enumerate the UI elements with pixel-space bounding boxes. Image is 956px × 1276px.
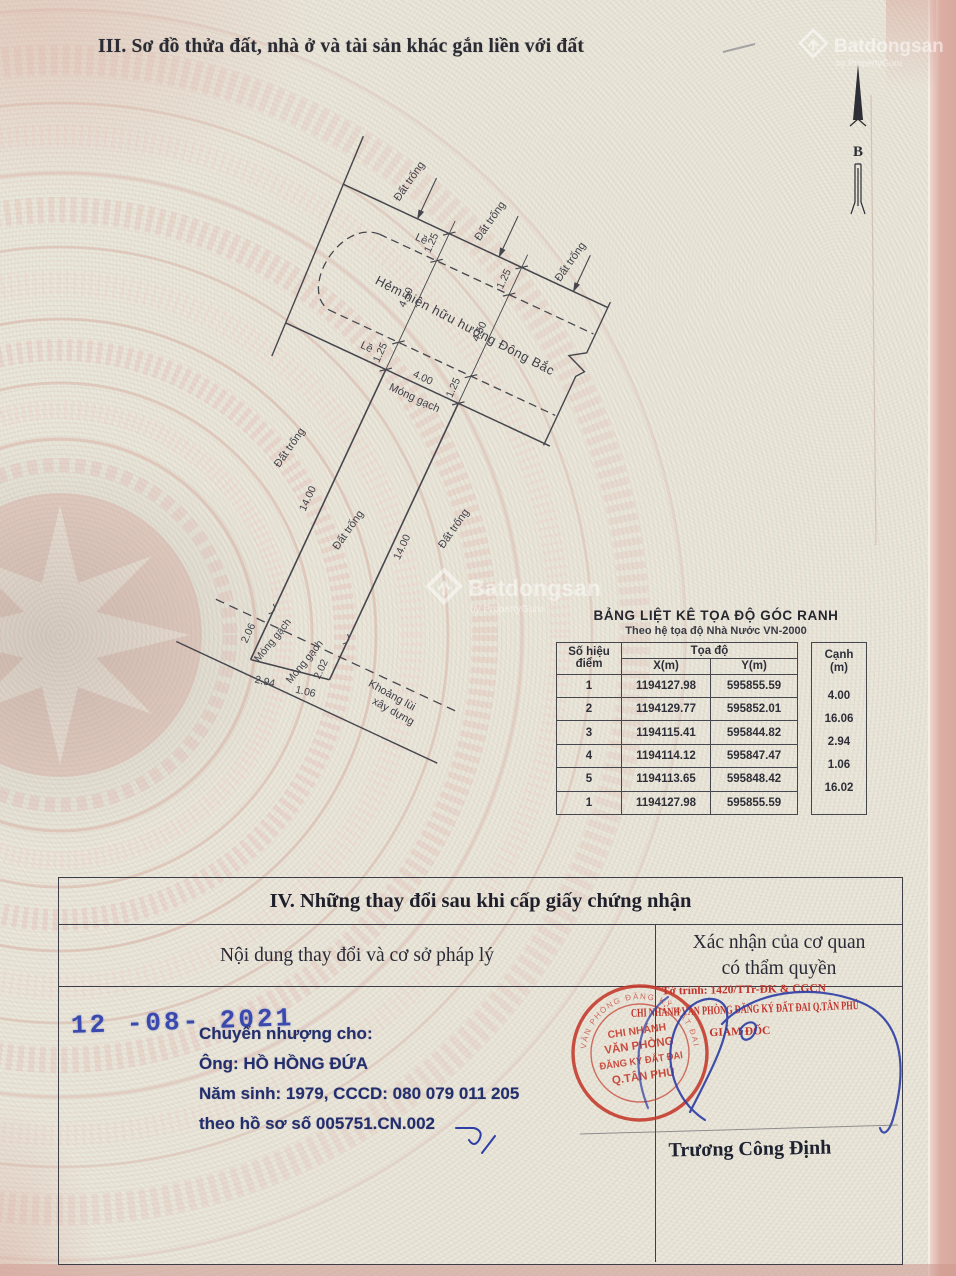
changes-column: Nội dung thay đổi và cơ sở pháp lý 12 -0…	[59, 925, 655, 1262]
authority-column: Xác nhận của cơ quan có thẩm quyền	[655, 925, 902, 1262]
setback-label-line1: Khoảng lùi	[366, 678, 417, 714]
table-row: 1 1194127.98 595855.59	[557, 674, 798, 697]
edge-value: 16.06	[812, 713, 866, 725]
col-header-coords: Tọa độ	[622, 643, 798, 659]
dim-2.02: 2.02	[311, 657, 331, 681]
dim-1.06: 1.06	[294, 684, 317, 700]
dimension-chain-lines	[385, 221, 528, 405]
pink-tint-topright	[886, 0, 936, 90]
edge-value: 16.02	[812, 782, 866, 794]
page-edge-right	[928, 0, 956, 1276]
dimension-tick-marks	[380, 228, 528, 409]
table-row: 2 1194129.77 595852.01	[557, 697, 798, 720]
dim-1.25: 1.25	[371, 341, 391, 365]
col-header-x: X(m)	[622, 659, 711, 674]
watermark-brand: Batdongsan	[834, 36, 944, 57]
watermark-sub: by PropertyGuru	[836, 58, 902, 68]
curb-label: Lề	[413, 231, 429, 247]
dim-1.25: 1.25	[494, 267, 514, 291]
col-header-y: Y(m)	[711, 659, 798, 674]
transfer-line: Ông: HỒ HỒNG ĐỨA	[199, 1049, 639, 1079]
north-letter: B	[853, 144, 863, 160]
photo-shadow	[0, 430, 300, 850]
watermark-topright: Batdongsan by PropertyGuru	[800, 30, 944, 68]
table-row: 1 1194127.98 595855.59	[557, 791, 798, 814]
edge-value: 1.06	[812, 759, 866, 771]
col-header-edge: Cạnh	[812, 649, 866, 662]
watermark-sub: by PropertyGuru	[470, 604, 543, 615]
vacant-land-label: Đất trống	[392, 159, 428, 203]
authority-column-header: Xác nhận của cơ quan có thẩm quyền	[656, 925, 902, 987]
setback-label-line2: xây dựng	[370, 695, 416, 728]
transfer-line: Chuyển nhượng cho:	[199, 1019, 639, 1049]
pink-tint-topleft	[0, 0, 320, 200]
transfer-line: Năm sinh: 1979, CCCD: 080 079 011 205	[199, 1079, 639, 1109]
vacant-land-label: Đất trống	[436, 507, 472, 551]
dim-1.25: 1.25	[444, 376, 464, 400]
table-row: 4 1194114.12 595847.47	[557, 744, 798, 767]
dim-14.00: 14.00	[391, 533, 413, 562]
rear-boundary-line	[176, 641, 437, 763]
batdongsan-logo-icon	[800, 30, 827, 57]
page-title: III. Sơ đồ thửa đất, nhà ở và tài sản kh…	[98, 36, 738, 58]
vacant-land-label: Đất trống	[272, 426, 308, 470]
foundation-label: Móng gạch	[284, 638, 326, 686]
vacant-land-label: Đất trống	[553, 240, 589, 284]
north-arrow-icon: B	[850, 64, 866, 214]
edge-value: 2.94	[812, 736, 866, 748]
plot-left-edge	[251, 370, 386, 660]
page-edge-bottom	[0, 1264, 956, 1276]
dim-4.50: 4.50	[470, 320, 490, 344]
page-fold-line	[871, 95, 876, 545]
coordinate-table-title: BẢNG LIỆT KÊ TỌA ĐỘ GÓC RANH	[556, 608, 876, 623]
edge-length-column: Cạnh (m) 4.00 16.06 2.94 1.06 16.02	[811, 642, 867, 815]
watermark-brand: Batdongsan	[468, 575, 601, 601]
coordinate-table-block: BẢNG LIỆT KÊ TỌA ĐỘ GÓC RANH Theo hệ tọa…	[556, 608, 876, 815]
dim-14.00: 14.00	[297, 484, 319, 513]
curb-label: Lề	[358, 339, 374, 355]
vacant-land-label: Đất trống	[331, 508, 367, 552]
alley-name-label: Hẻm hiện hữu hướng Đông Bắc	[373, 273, 557, 379]
changes-column-header: Nội dung thay đổi và cơ sở pháp lý	[59, 925, 655, 987]
alley-dashed-bottom	[329, 310, 556, 416]
col-header-point: Số hiệu điểm	[557, 643, 622, 675]
plot-rear-edge	[251, 646, 330, 693]
coordinate-table: Số hiệu điểm Tọa độ X(m) Y(m) 1 1194127.…	[556, 642, 798, 815]
section-4-title: IV. Những thay đổi sau khi cấp giấy chứn…	[59, 878, 902, 925]
batdongsan-logo-icon	[428, 570, 460, 602]
drum-star-icon	[0, 505, 190, 765]
authority-signature-area	[656, 987, 902, 1262]
edge-value: 4.00	[812, 690, 866, 702]
foundation-label: Móng gạch	[252, 616, 294, 664]
alley-dashed-cap	[308, 219, 379, 316]
dim-2.94: 2.94	[254, 674, 277, 690]
certificate-page: III. Sơ đồ thửa đất, nhà ở và tài sản kh…	[0, 0, 956, 1276]
foundation-label: Móng gạch	[387, 381, 441, 415]
dim-2.06: 2.06	[239, 621, 259, 645]
plot-right-edge	[329, 403, 458, 679]
alley-top-edge-line	[343, 184, 608, 307]
transfer-note: Chuyển nhượng cho: Ông: HỒ HỒNG ĐỨA Năm …	[199, 1019, 639, 1139]
neighbour-boundary-ticks	[414, 177, 595, 294]
foundation-brace-marks	[269, 600, 351, 649]
table-row: 3 1194115.41 595844.82	[557, 721, 798, 744]
coordinate-table-subtitle: Theo hệ tọa độ Nhà Nước VN-2000	[556, 625, 876, 637]
section-4-changes: IV. Những thay đổi sau khi cấp giấy chứn…	[58, 877, 903, 1265]
vacant-land-label: Đất trống	[472, 199, 508, 243]
dim-4.00: 4.00	[411, 368, 435, 388]
table-row: 5 1194113.65 595848.42	[557, 768, 798, 791]
alley-dashed-top	[379, 234, 593, 334]
left-boundary-line	[263, 136, 373, 356]
setback-dashed-line	[216, 599, 455, 711]
plot-frontage-line	[285, 323, 550, 446]
dim-4.50: 4.50	[396, 285, 416, 309]
dim-1.25: 1.25	[422, 231, 442, 255]
transfer-line: theo hồ sơ số 005751.CN.002	[199, 1109, 639, 1139]
break-line-zigzag	[530, 296, 616, 448]
